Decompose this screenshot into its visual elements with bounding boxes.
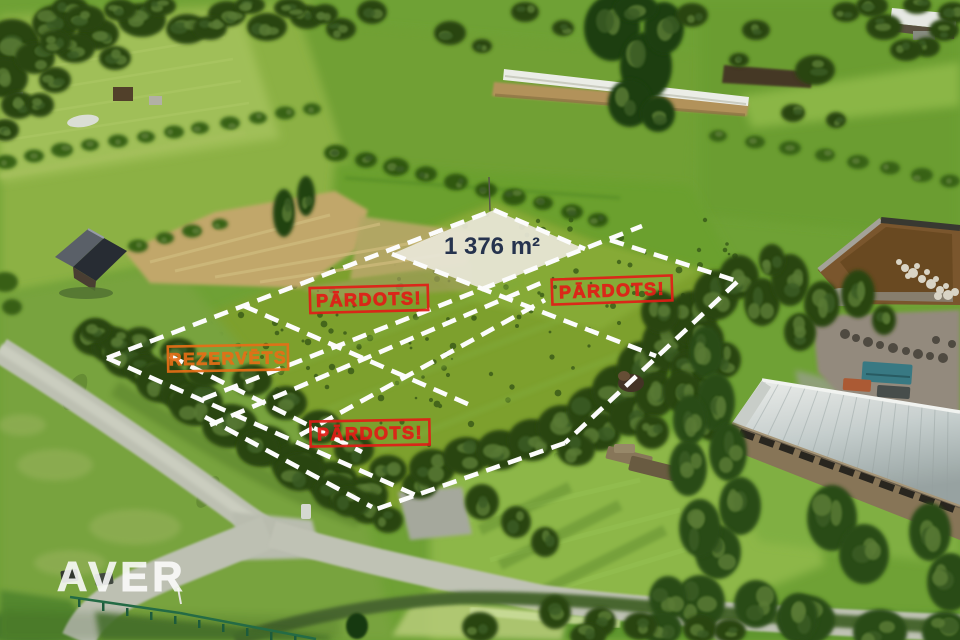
svg-text:REZERVĒTS: REZERVĒTS (169, 347, 288, 369)
svg-text:PĀRDOTS!: PĀRDOTS! (316, 288, 422, 311)
svg-text:AVER: AVER (57, 553, 187, 600)
svg-text:PĀRDOTS!: PĀRDOTS! (317, 423, 423, 445)
svg-text:1 376 m²: 1 376 m² (444, 233, 540, 260)
svg-text:PĀRDOTS!: PĀRDOTS! (559, 279, 666, 303)
